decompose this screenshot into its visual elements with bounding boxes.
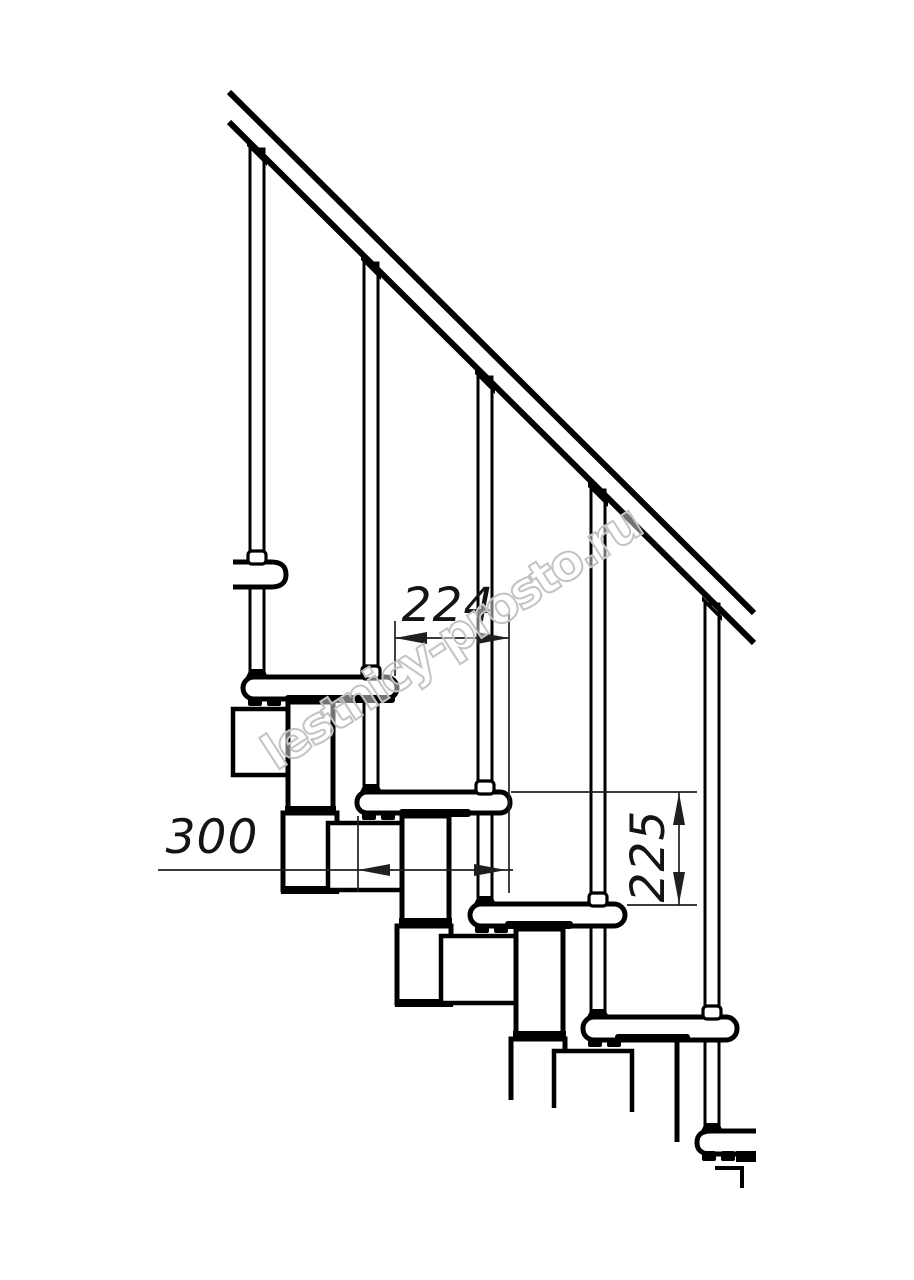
tread-5-cut — [697, 1131, 756, 1154]
tread-foot — [494, 924, 508, 933]
baluster-collar — [703, 1006, 721, 1019]
baluster-collar — [589, 893, 607, 906]
upper-landing-tread-cut — [233, 562, 286, 587]
under-tread-bar — [399, 809, 471, 817]
tread-foot — [475, 924, 489, 933]
support-column — [516, 929, 563, 1037]
dimension-225-label: 225 — [621, 810, 676, 903]
tread-foot — [588, 1038, 602, 1047]
tread-foot — [267, 697, 281, 706]
tread-foot — [248, 697, 262, 706]
module-box-cut — [554, 1051, 632, 1112]
tread-foot — [702, 1151, 716, 1161]
baluster-1 — [250, 149, 264, 685]
tread-foot — [736, 1151, 756, 1162]
tread-foot — [607, 1038, 621, 1047]
under-tread-bar — [615, 1034, 690, 1042]
baluster-collar — [476, 781, 494, 794]
dimension-300-label: 300 — [166, 810, 259, 865]
tread-foot — [362, 811, 376, 820]
tread-foot — [721, 1151, 735, 1161]
tread-foot — [381, 811, 395, 820]
module-box — [328, 823, 403, 890]
baluster-5 — [705, 604, 719, 1140]
baluster-collar — [248, 551, 266, 564]
floor-break-line — [715, 1168, 742, 1188]
under-tread-bar — [505, 921, 573, 929]
staircase-drawing-page: 224 300 225 lestnicy-prosto.ru — [0, 0, 914, 1280]
technical-drawing-canvas: 224 300 225 lestnicy-prosto.ru — [0, 0, 914, 1280]
module-box — [441, 936, 516, 1003]
